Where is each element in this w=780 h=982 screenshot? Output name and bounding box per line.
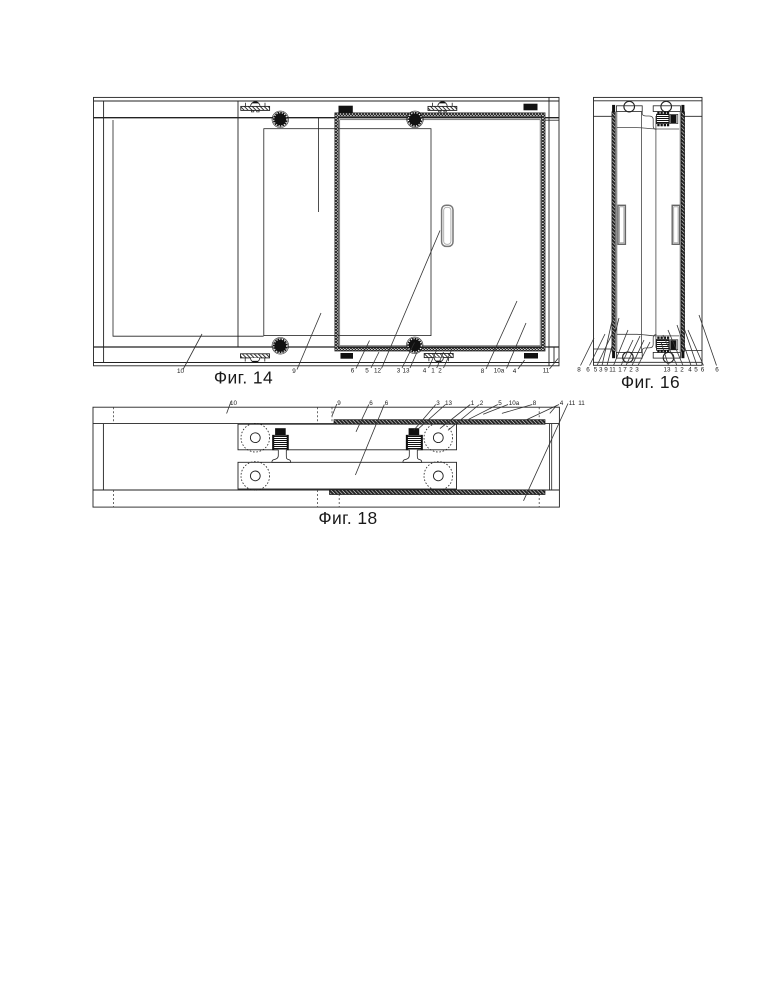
svg-text:12: 12 (374, 368, 382, 375)
svg-text:2: 2 (480, 400, 484, 407)
svg-text:1: 1 (471, 400, 475, 407)
svg-text:5: 5 (498, 400, 502, 407)
svg-text:10: 10 (177, 368, 185, 375)
svg-text:13: 13 (402, 368, 410, 375)
svg-text:6: 6 (715, 367, 719, 374)
svg-text:5: 5 (365, 368, 369, 375)
svg-text:10a: 10a (509, 400, 520, 407)
svg-text:8: 8 (481, 368, 485, 375)
svg-text:8: 8 (533, 400, 537, 407)
svg-text:4: 4 (688, 367, 692, 374)
svg-text:13: 13 (445, 400, 453, 407)
svg-text:6: 6 (351, 368, 355, 375)
svg-text:9: 9 (337, 400, 341, 407)
svg-text:9: 9 (604, 367, 608, 374)
svg-text:2: 2 (438, 368, 442, 375)
svg-text:Фиг. 16: Фиг. 16 (621, 372, 680, 392)
svg-text:6: 6 (701, 367, 705, 374)
svg-text:Фиг. 14: Фиг. 14 (214, 367, 273, 387)
svg-text:6: 6 (586, 367, 590, 374)
svg-text:5: 5 (694, 367, 698, 374)
svg-text:11: 11 (569, 400, 576, 407)
svg-text:11: 11 (543, 368, 550, 375)
svg-text:1: 1 (431, 368, 435, 375)
svg-text:4: 4 (513, 368, 517, 375)
svg-text:4: 4 (423, 368, 427, 375)
svg-text:10a: 10a (494, 368, 505, 375)
svg-text:4: 4 (560, 400, 564, 407)
svg-text:10: 10 (230, 400, 238, 407)
svg-text:Фиг. 18: Фиг. 18 (318, 508, 377, 528)
svg-text:11: 11 (578, 400, 585, 407)
svg-text:6: 6 (385, 400, 389, 407)
svg-text:5: 5 (594, 367, 598, 374)
svg-text:8: 8 (577, 367, 581, 374)
svg-text:3: 3 (397, 368, 401, 375)
svg-text:2: 2 (680, 367, 684, 374)
svg-text:3: 3 (599, 367, 603, 374)
svg-text:9: 9 (292, 368, 296, 375)
svg-text:11: 11 (609, 367, 616, 374)
svg-text:6: 6 (369, 400, 373, 407)
svg-text:3: 3 (436, 400, 440, 407)
